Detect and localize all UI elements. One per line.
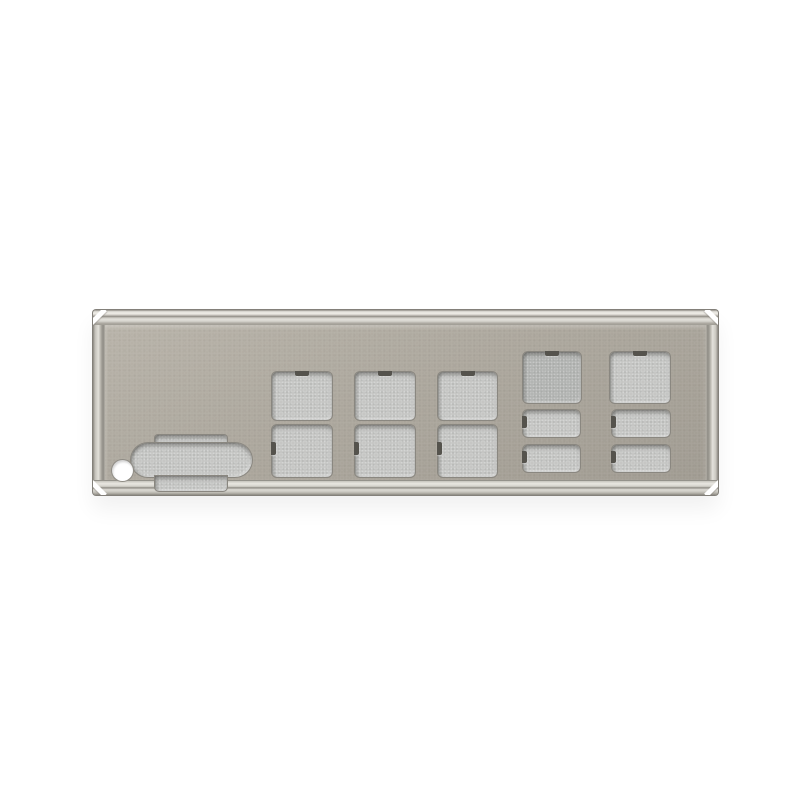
plate-right-edge [706,310,718,495]
port-cutout-bottom-1 [272,425,332,477]
stamped-notch [545,351,559,356]
port-cutout-bottom-2 [355,425,415,477]
stamped-notch [354,442,359,455]
usb-port-cutout-2b [612,445,670,472]
stamped-notch [522,451,527,463]
usb-port-cutout-1b [612,410,670,437]
stamped-notch [437,442,442,455]
stamped-notch [522,416,527,428]
stamped-notch [611,451,616,463]
stamped-notch [611,416,616,428]
lan-port-cutout-2 [610,352,670,403]
io-shield-plate [93,310,718,495]
plate-top-edge [93,310,718,325]
dsub-vga-cutout-bottom-tab [155,476,227,491]
port-cutout-top-3 [438,372,497,420]
stamped-notch [633,351,647,356]
port-cutout-top-2 [355,372,415,420]
stamped-notch [295,371,309,376]
port-cutout-top-1 [272,372,332,420]
mounting-hole [112,460,133,481]
usb-port-cutout-2a [523,445,580,472]
photo-background [0,0,800,800]
plate-left-edge [93,310,105,495]
usb-port-cutout-1a [523,410,580,437]
lan-port-cutout-1 [523,352,581,403]
dsub-vga-cutout [131,435,252,491]
port-cutout-bottom-3 [438,425,497,477]
stamped-notch [271,442,276,455]
dsub-vga-cutout-body [131,443,252,477]
stamped-notch [461,371,475,376]
stamped-notch [378,371,392,376]
